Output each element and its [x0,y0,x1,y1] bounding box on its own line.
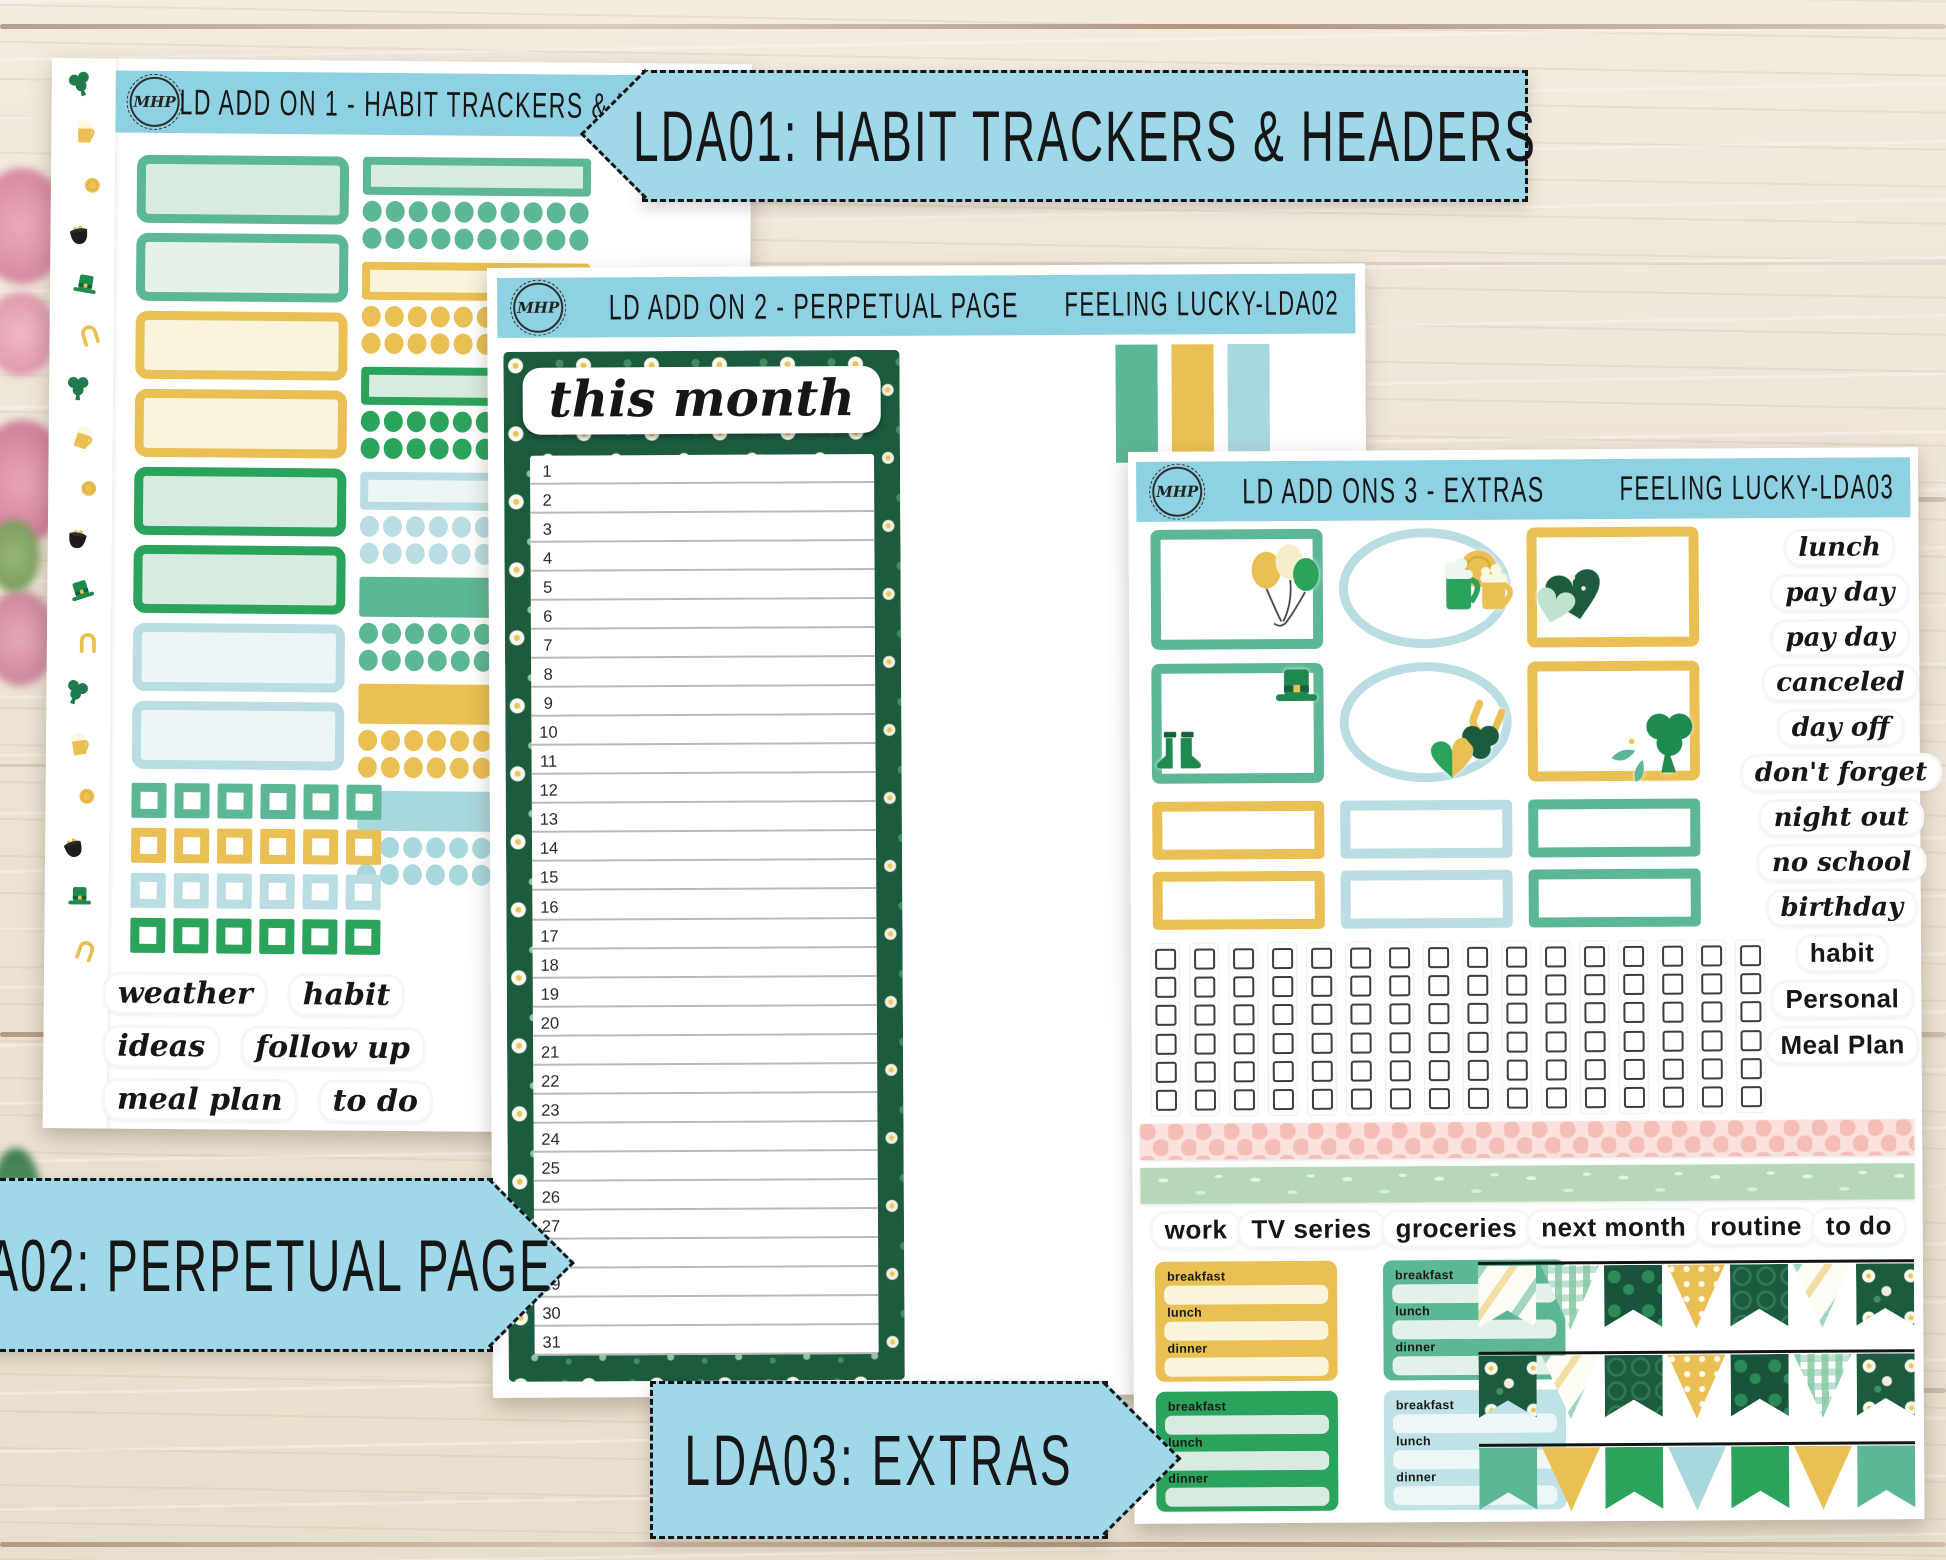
checkbox-strip [1385,942,1414,1114]
checkbox-sticker [1311,1089,1332,1110]
checkbox-sticker [1389,1060,1410,1081]
pennant-flag-sticker [1857,1353,1915,1415]
checkbox-sticker [1506,1003,1527,1024]
checkbox-sticker [1701,1002,1722,1023]
checkbox-sticker [1155,1005,1176,1026]
day-number: 13 [532,811,566,831]
wood-plank-groove [0,24,1946,29]
day-number: 16 [532,898,566,918]
habit-dot-sticker [450,731,469,752]
habit-dot-sticker [384,438,403,459]
meal-field [1164,1285,1328,1305]
checkbox-sticker [1662,974,1683,995]
checkbox-sticker [1350,1088,1371,1109]
habit-dot-sticker [363,201,382,222]
pot-of-gold-icon [52,827,95,870]
horseshoe-icon [71,625,105,664]
pot-of-gold-icon [60,216,99,260]
checkbox-sticker [1545,975,1566,996]
list-row: 24 [533,1122,877,1153]
meal-field [1165,1415,1329,1435]
gold-coin-icon [71,164,114,207]
pennant-flag-sticker [1856,1263,1914,1325]
checkbox-sticker [1740,1002,1761,1023]
list-row: 12 [532,773,876,804]
habit-dot-sticker [383,516,402,537]
pennant-row [1479,1349,1915,1420]
boots-icon [1148,721,1210,788]
habit-dot-sticker [406,543,425,564]
checkbox-sticker [1272,1089,1293,1110]
list-row: 22 [533,1064,877,1095]
checkbox-sticker [1467,1031,1488,1052]
pennant-flag-sticker [1668,1446,1726,1510]
meal-field [1165,1487,1329,1507]
habit-dot-sticker [358,730,377,751]
checkbox-sticker [260,874,295,909]
pennant-flag-sticker [1479,1356,1537,1418]
list-row: 6 [531,599,875,630]
checkbox-sticker [1272,948,1293,969]
checkbox-sticker [1662,946,1683,967]
day-number: 10 [531,724,565,744]
checkbox-sticker [1662,1030,1683,1051]
habit-dot-sticker [429,516,448,537]
meal-field [1165,1357,1329,1377]
checkbox-sticker [1194,1089,1215,1110]
habit-dot-sticker [404,757,423,778]
checkbox-sticker [1701,1086,1722,1107]
checkbox-sticker [130,918,165,953]
header-box-sticker [133,545,346,615]
print-word-sticker: habit [1798,936,1887,970]
meal-label: breakfast [1167,1269,1328,1284]
balloons-icon [1239,540,1332,638]
checkbox-sticker [217,828,252,863]
habit-dot-sticker [426,864,445,885]
habit-dot-sticker [454,307,473,328]
label-box-sticker [1528,799,1700,858]
pennant-flag-sticker [1605,1447,1663,1509]
checkbox-sticker [1740,1086,1761,1107]
beer-mug-icon [69,115,103,154]
checkbox-row [130,918,380,955]
checkbox-sticker [1701,1058,1722,1079]
checkbox-sticker [1701,945,1722,966]
header-box-column [132,155,349,781]
sticker-sheet-lda03: MHP LD ADD ONS 3 - EXTRAS FEELING LUCKY-… [1128,447,1925,1524]
decorative-frame [1338,528,1511,649]
checkbox-sticker [1584,1087,1605,1108]
label-word-sticker: to do [1814,1209,1904,1243]
checkbox-sticker [1350,948,1371,969]
perpetual-page-sticker: this month 12345678910111213141516171819… [503,350,904,1382]
pennant-flag-sticker [1541,1265,1599,1329]
list-row: 8 [531,657,875,688]
checkbox-strip [1346,943,1375,1115]
header-bar-sticker [363,157,591,197]
habit-dot-sticker [380,837,399,858]
list-row: 5 [531,570,875,601]
habit-dot-sticker [428,650,447,671]
pennant-flag-sticker [1542,1355,1600,1419]
checkbox-sticker [1389,1004,1410,1025]
habit-dot-sticker [472,865,491,886]
script-word-sticker: canceled [1764,666,1917,699]
checkbox-sticker [217,783,252,818]
habit-dot-sticker [430,438,449,459]
checkbox-sticker [1662,1087,1683,1108]
day-number: 2 [530,492,564,512]
checkbox-sticker [1740,973,1761,994]
day-number: 22 [533,1072,567,1092]
checkbox-sticker [346,875,381,910]
mhp-wreath-logo: MHP [1152,467,1202,517]
checkbox-sticker [1350,1060,1371,1081]
checkbox-sticker [1584,1002,1605,1023]
list-row: 4 [530,541,874,572]
horseshoe-shamrock-heart-icon [1420,692,1513,790]
leprechaun-hat-icon [60,570,104,617]
list-row: 11 [532,744,876,775]
checkbox-sticker [1545,1059,1566,1080]
checkbox-sticker [1623,1087,1644,1108]
beer-mug-icon [61,725,100,769]
checkbox-sticker [1623,1030,1644,1051]
script-word-sticker: ideas [105,1028,217,1066]
habit-dot-sticker [384,411,403,432]
banner-lda03-text: LDA03: EXTRAS [684,1418,1073,1502]
habit-dot-sticker [453,334,472,355]
pennant-flag-sticker [1731,1446,1789,1508]
pink-flower [0,292,56,376]
list-row: 16 [532,889,876,920]
sheet2-header: MHP LD ADD ON 2 - PERPETUAL PAGE FEELING… [497,273,1355,337]
banner-lda01-text: LDA01: HABIT TRACKERS & HEADERS [633,94,1537,178]
checkbox-sticker [1662,1058,1683,1079]
checkbox-sticker [1584,946,1605,967]
script-word-sticker: to do [320,1082,430,1120]
checkbox-sticker [260,784,295,819]
checkbox-sticker [1389,975,1410,996]
checkbox-sticker [1350,1032,1371,1053]
pennant-row [1478,1259,1914,1330]
checkbox-sticker [303,874,338,909]
habit-dot-sticker [430,411,449,432]
habit-dot-sticker [382,623,401,644]
checkbox-sticker [1545,1003,1566,1024]
habit-dot-sticker [360,516,379,537]
pot-of-gold-icon [57,520,97,564]
day-number: 21 [533,1043,567,1063]
checkbox-sticker [1506,1059,1527,1080]
checkbox-sticker [1467,947,1488,968]
day-number: 31 [535,1334,569,1354]
habit-dot-sticker [449,837,468,858]
habit-dot-sticker [362,228,381,249]
color-bar-sticker [1171,344,1214,462]
habit-dot-sticker [358,757,377,778]
checkbox-sticker [1233,1089,1254,1110]
hearts-icon [1523,539,1616,637]
checkbox-strip [1658,941,1687,1113]
meal-box-sticker: breakfastlunchdinner [1156,1391,1339,1512]
habit-dot-sticker [472,838,491,859]
day-number: 8 [531,666,565,686]
checkbox-sticker [174,828,209,863]
habit-dot-sticker [407,333,426,354]
habit-dot-sticker [570,203,589,224]
checkbox-strip [1697,940,1726,1112]
habit-dot-sticker [408,306,427,327]
checkbox-sticker [1311,948,1332,969]
sheet3-code: FEELING LUCKY-LDA03 [1619,467,1894,509]
checkbox-strip [1190,943,1219,1115]
day-number: 7 [531,637,565,657]
sheet2-title: LD ADD ON 2 - PERPETUAL PAGE [609,284,1019,328]
tracker-group [362,157,591,251]
script-word-sticker: pay day [1773,576,1907,609]
habit-dot-sticker [453,439,472,460]
checkbox-sticker [131,873,166,908]
clover-icon [59,62,102,105]
header-box-sticker [137,155,350,225]
habit-dot-sticker [385,228,404,249]
habit-dot-sticker [404,730,423,751]
checkbox-sticker [1467,1088,1488,1109]
checkbox-sticker [1194,1061,1215,1082]
wood-plank-groove [0,1542,1946,1547]
day-number: 17 [532,927,566,947]
checkbox-sticker [216,918,251,953]
checkbox-sticker [1272,976,1293,997]
label-word-sticker: next month [1529,1210,1698,1244]
checkbox-strip [1502,942,1531,1114]
beer-mug-icon [61,725,100,764]
checkbox-strip [1307,943,1336,1115]
pennant-flag-sticker [1794,1446,1852,1510]
mhp-logo-text: MHP [1156,483,1198,501]
script-word-row: ideasfollow up [105,1028,435,1068]
script-word-sticker: meal plan [105,1081,295,1120]
label-word-sticker: routine [1698,1209,1814,1243]
habit-dot-sticker [431,306,450,327]
checkbox-sticker [1506,975,1527,996]
list-row: 30 [534,1296,878,1327]
clover-sprig-icon [1607,690,1700,783]
banner-lda02-text: LDA02: PERPETUAL PAGE [0,1222,552,1307]
label-word-sticker: work [1153,1213,1240,1247]
day-number: 12 [532,782,566,802]
checkbox-sticker [1740,1030,1761,1051]
habit-dot-sticker [403,864,422,885]
checkbox-sticker [1428,1003,1449,1024]
checkbox-strip [1541,941,1570,1113]
checkbox-sticker [1506,947,1527,968]
habit-dot-sticker [361,333,380,354]
checkbox-sticker [1155,1033,1176,1054]
meal-label: breakfast [1168,1399,1329,1414]
habit-dot-sticker [427,757,446,778]
habit-dot-sticker [430,333,449,354]
habit-dot-sticker [409,201,428,222]
label-word-sticker: TV series [1239,1212,1383,1246]
beer-mug-icon [63,417,106,460]
decorative-frame [1526,527,1699,648]
beer-mugs-icon [1428,539,1521,637]
beer-mugs-icon [1428,539,1521,632]
script-word-sticker: night out [1762,801,1921,834]
checkbox-sticker [1233,976,1254,997]
habit-dot-sticker [453,412,472,433]
list-row: 19 [533,977,877,1008]
habit-dot-sticker [407,411,426,432]
st-patricks-washi-strip [49,58,117,1128]
list-row: 1 [530,454,874,485]
label-box-sticker [1153,871,1325,930]
checkbox-sticker [1701,974,1722,995]
pennant-flag-sticker [1731,1354,1789,1416]
horseshoe-shamrock-heart-icon [1420,692,1513,785]
pennant-row [1479,1441,1915,1512]
checkbox-strip [1229,943,1258,1115]
header-box-sticker [134,467,347,537]
checkbox-sticker [174,783,209,818]
checkbox-sticker [1155,949,1176,970]
list-row: 18 [533,948,877,979]
checkbox-sticker [1740,945,1761,966]
list-row: 17 [532,918,876,949]
habit-dot-sticker [455,202,474,223]
checkbox-sticker [1272,1033,1293,1054]
checkbox-row [131,783,381,820]
sage-leaf-washi [1140,1163,1914,1204]
list-row: 23 [533,1093,877,1124]
pennant-flag-sticker [1478,1266,1536,1328]
day-number: 14 [532,840,566,860]
day-number: 25 [534,1159,568,1179]
checkbox-sticker [1545,946,1566,967]
list-row: 25 [534,1151,878,1182]
script-word-sticker: don't forget [1743,756,1940,789]
day-number: 4 [530,550,564,570]
pink-honeycomb-washi [1140,1119,1914,1160]
label-box-sticker [1152,801,1324,860]
horseshoe-icon [71,625,105,659]
checkbox-sticker [1467,975,1488,996]
color-bar-sticker [1115,344,1158,462]
list-row: 9 [531,686,875,717]
day-number: 20 [533,1014,567,1034]
clover-icon [53,670,98,718]
checkbox-strip [1463,942,1492,1114]
meal-label: dinner [1168,1471,1329,1486]
pot-of-gold-icon [60,216,99,255]
checkbox-sticker [1545,1087,1566,1108]
meal-field [1164,1321,1328,1341]
checkbox-row [131,828,381,865]
script-word-row: weatherhabit [106,975,436,1015]
script-word-sticker: weather [106,975,265,1013]
checkbox-sticker [1506,1031,1527,1052]
checkbox-sticker [1311,1032,1332,1053]
script-word-sticker: pay day [1773,621,1907,654]
checkbox-sticker [1662,1002,1683,1023]
clover-icon [61,370,95,409]
list-row: 28 [534,1238,878,1269]
decorative-frame [1527,661,1700,782]
leprechaun-hat-icon [62,880,96,919]
list-row: 26 [534,1180,878,1211]
checkbox-sticker-rows [130,783,382,965]
header-box-sticker [135,311,348,381]
day-number: 3 [530,521,564,541]
habit-dot-sticker [407,438,426,459]
label-word-sticker: groceries [1383,1211,1529,1245]
habit-dot-sticker [547,202,566,223]
leprechaun-hat-icon [1265,657,1327,719]
checkbox-sticker [303,829,338,864]
script-word-sticker: no school [1760,846,1923,879]
script-word-row: meal planto do [105,1081,435,1121]
header-box-sticker [132,701,345,771]
list-row: 21 [533,1035,877,1066]
habit-dot-sticker [452,517,471,538]
pennant-flag-sticker [1794,1354,1852,1418]
checkbox-strip [1580,941,1609,1113]
day-number: 19 [533,985,567,1005]
checkbox-sticker [302,919,337,954]
habit-dot-sticker [403,837,422,858]
habit-dot-sticker [382,650,401,671]
day-number: 26 [534,1188,568,1208]
pennant-flag-sticker [1667,1264,1725,1328]
day-number: 1 [530,463,564,483]
beer-mug-icon [61,417,106,465]
checkbox-row [131,873,381,910]
checkbox-sticker [1545,1031,1566,1052]
product-photo: MHP LD ADD ON 1 - HABIT TRACKERS & HEADE… [0,0,1946,1560]
habit-dot-sticker [449,864,468,885]
page-title: this month [522,366,880,435]
checkbox-sticker [1467,1003,1488,1024]
checkbox-sticker [1194,1005,1215,1026]
mhp-logo-text: MHP [517,299,559,317]
habit-dot-sticker [546,229,565,250]
gold-coin-icon [67,777,106,816]
label-word-stickers: workTV seriesgroceriesnext monthroutinet… [1153,1206,1778,1250]
habit-dot-sticker [501,202,520,223]
checkbox-sticker [1389,947,1410,968]
mhp-wreath-logo: MHP [129,77,179,127]
checkbox-sticker [174,873,209,908]
habit-dot-sticker [523,229,542,250]
checkbox-sticker [303,784,338,819]
habit-dot-sticker [428,623,447,644]
habit-dot-sticker [381,757,400,778]
habit-dot-sticker [406,516,425,537]
checkbox-sticker [1584,1031,1605,1052]
checkbox-strip [1619,941,1648,1113]
checkbox-sticker [1428,947,1449,968]
horseshoe-icon [68,313,112,360]
checkbox-sticker [1506,1088,1527,1109]
clover-icon [61,370,95,404]
pennant-flag-sticker [1730,1264,1788,1326]
habit-dot-sticker [385,306,404,327]
habit-dot-sticker [432,201,451,222]
habit-dot-sticker [359,650,378,671]
